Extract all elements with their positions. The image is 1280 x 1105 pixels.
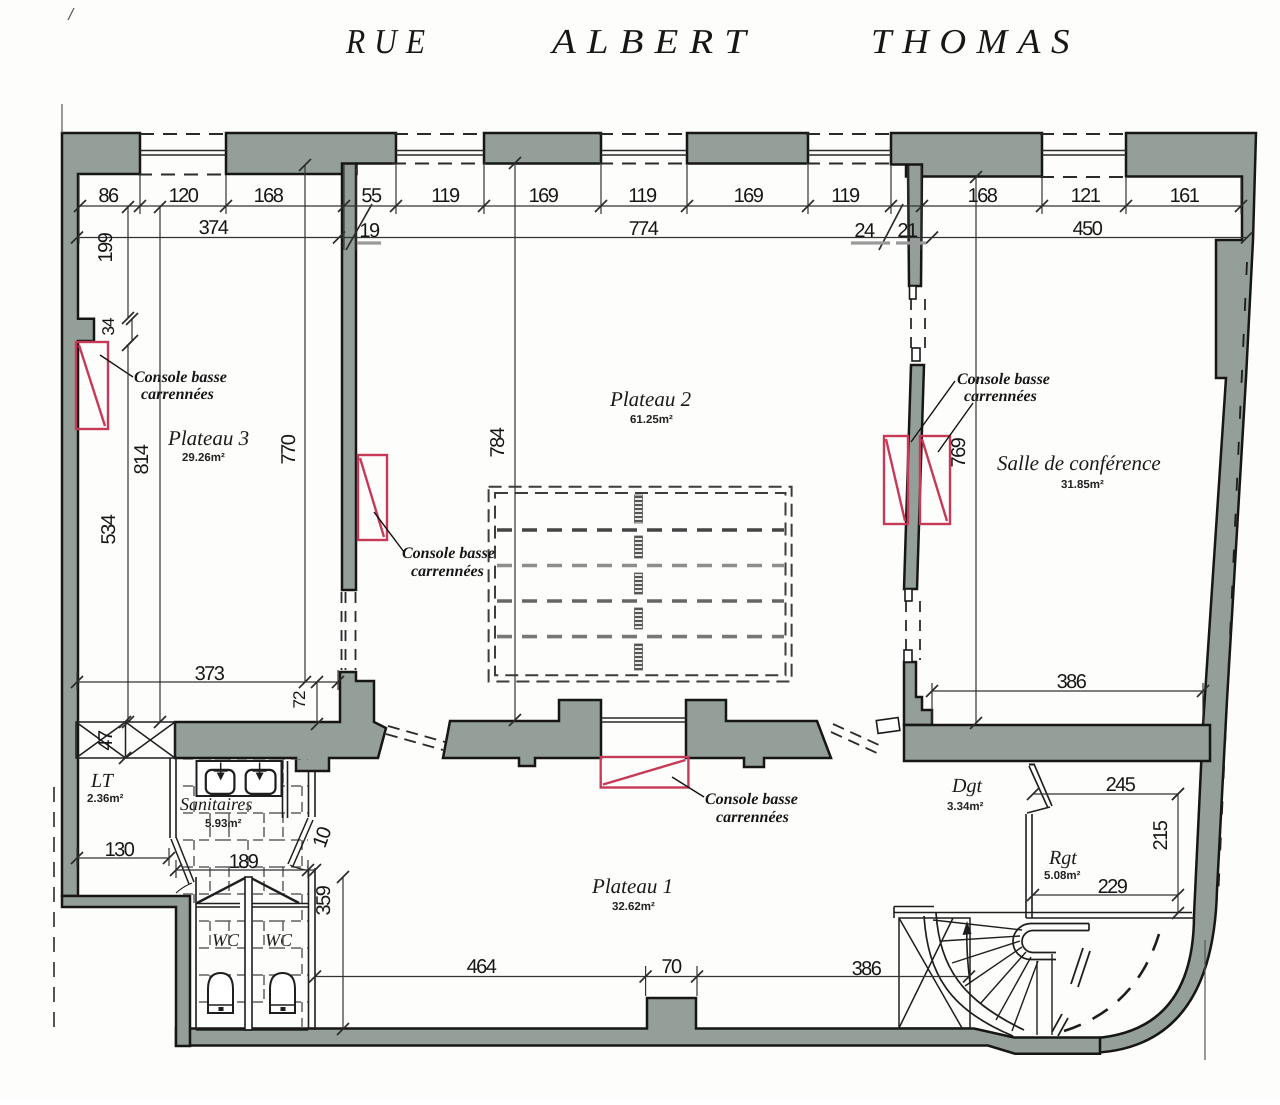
svg-text:34: 34 (99, 318, 118, 335)
svg-text:245: 245 (1106, 774, 1136, 796)
svg-text:47: 47 (95, 730, 117, 751)
svg-text:374: 374 (199, 217, 229, 239)
svg-text:29.26m²: 29.26m² (182, 452, 225, 464)
svg-text:LT: LT (90, 770, 115, 792)
svg-text:120: 120 (169, 185, 199, 207)
svg-text:450: 450 (1073, 218, 1103, 240)
svg-text:229: 229 (1098, 876, 1128, 898)
svg-text:386: 386 (852, 958, 882, 980)
svg-text:Console basse: Console basse (402, 545, 495, 562)
svg-text:carrennées: carrennées (716, 809, 789, 826)
svg-text:169: 169 (529, 185, 559, 207)
svg-text:Plateau 2: Plateau 2 (609, 387, 692, 411)
svg-text:119: 119 (831, 185, 860, 207)
svg-text:169: 169 (734, 185, 764, 207)
svg-text:168: 168 (968, 185, 998, 207)
svg-text:Salle de conférence: Salle de conférence (997, 451, 1161, 475)
svg-text:61.25m²: 61.25m² (630, 414, 673, 426)
svg-text:carrennées: carrennées (411, 563, 484, 580)
svg-text:774: 774 (629, 218, 659, 240)
svg-text:534: 534 (98, 514, 120, 544)
svg-text:55: 55 (361, 185, 382, 207)
svg-text:31.85m²: 31.85m² (1061, 479, 1104, 491)
svg-text:373: 373 (195, 663, 225, 685)
svg-text:130: 130 (105, 839, 135, 861)
svg-text:19: 19 (359, 220, 380, 242)
svg-text:Dgt: Dgt (951, 775, 982, 797)
svg-text:Plateau 1: Plateau 1 (591, 874, 673, 898)
svg-text:769: 769 (948, 437, 970, 467)
svg-text:464: 464 (467, 956, 497, 978)
svg-text:5.08m²: 5.08m² (1044, 870, 1081, 882)
svg-text:70: 70 (661, 956, 682, 978)
svg-text:119: 119 (628, 185, 657, 207)
svg-text:21: 21 (897, 220, 918, 242)
svg-text:215: 215 (1150, 820, 1172, 850)
svg-text:32.62m²: 32.62m² (612, 901, 655, 913)
svg-text:24: 24 (854, 220, 875, 242)
svg-text:carrennées: carrennées (964, 388, 1037, 405)
svg-text:121: 121 (1071, 185, 1101, 207)
svg-text:THOMAS: THOMAS (871, 22, 1080, 61)
svg-text:3.34m²: 3.34m² (947, 801, 984, 813)
svg-text:Console basse: Console basse (705, 791, 798, 808)
svg-text:386: 386 (1057, 671, 1087, 693)
svg-text:161: 161 (1170, 185, 1200, 207)
svg-text:carrennées: carrennées (141, 386, 214, 403)
svg-text:119: 119 (431, 185, 460, 207)
svg-text:770: 770 (278, 434, 300, 464)
svg-text:784: 784 (487, 427, 509, 457)
svg-text:Rgt: Rgt (1048, 847, 1077, 869)
svg-text:ALBERT: ALBERT (550, 22, 757, 61)
svg-text:72: 72 (290, 691, 309, 708)
svg-text:814: 814 (131, 444, 153, 474)
svg-text:199: 199 (95, 232, 117, 262)
svg-text:86: 86 (98, 185, 119, 207)
svg-text:359: 359 (313, 885, 335, 915)
svg-text:168: 168 (254, 185, 284, 207)
svg-text:RUE: RUE (345, 22, 434, 61)
svg-text:189: 189 (229, 851, 259, 873)
svg-text:Plateau 3: Plateau 3 (167, 426, 249, 450)
svg-text:2.36m²: 2.36m² (87, 793, 124, 805)
svg-text:Console basse: Console basse (134, 369, 227, 386)
svg-text:Console basse: Console basse (957, 371, 1050, 388)
